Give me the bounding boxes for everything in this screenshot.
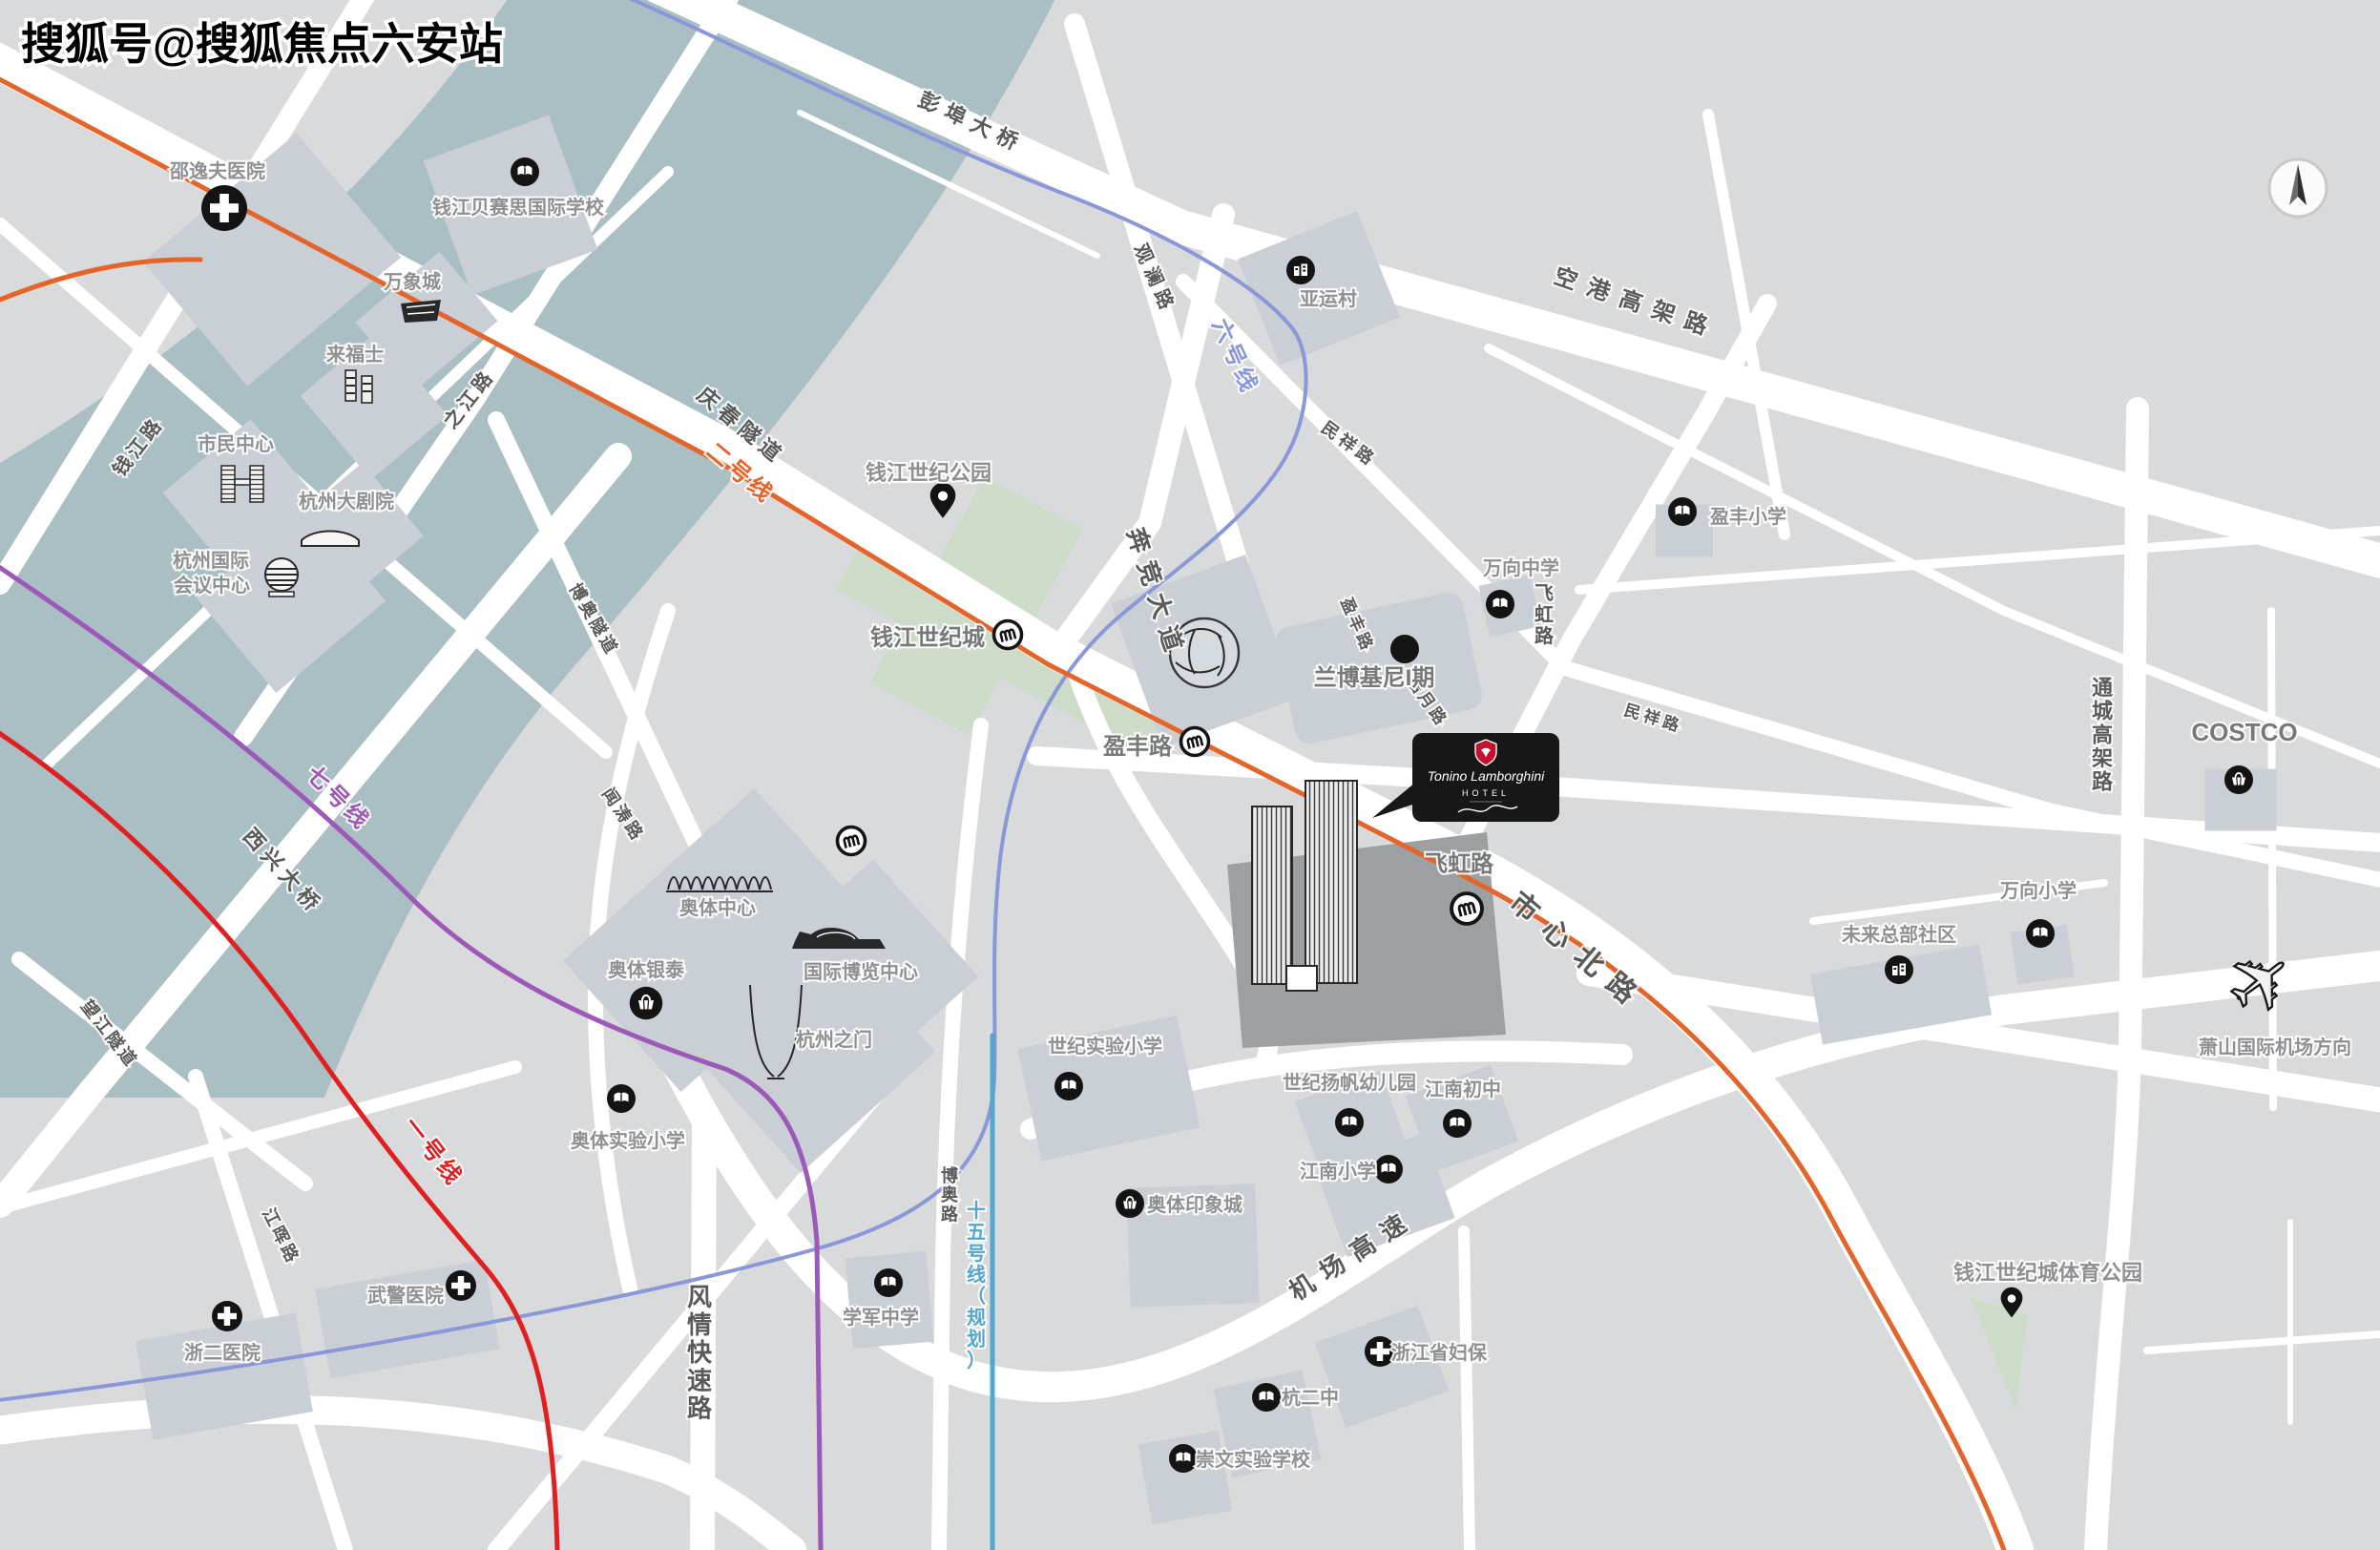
poi-label: 万向中学 (1482, 556, 1559, 579)
school-icon (874, 1268, 903, 1297)
site-dot-icon (1390, 635, 1419, 663)
poi-label: 盈丰小学 (1709, 505, 1786, 528)
shopping-icon (2224, 765, 2253, 794)
poi-label: COSTCO (2191, 718, 2297, 746)
poi-label: 万向小学 (1999, 879, 2077, 902)
school-icon (1054, 1072, 1083, 1100)
poi-label: 奥体印象城 (1147, 1193, 1242, 1216)
metro-station-icon (1181, 728, 1209, 756)
school-icon (1252, 1383, 1281, 1412)
poi-label: 钱江世纪城体育公园 (1953, 1261, 2142, 1285)
poi-label: 学军中学 (843, 1306, 919, 1329)
poi-label: 世纪扬帆幼儿园 (1283, 1071, 1416, 1094)
metro-station-icon (994, 621, 1022, 649)
school-icon (1335, 1108, 1364, 1137)
building-icon (1885, 955, 1913, 984)
poi-label: 江南小学 (1300, 1160, 1376, 1183)
poi-label: 奥体中心 (679, 896, 756, 919)
road-label: 博奥路 (941, 1165, 959, 1224)
poi-label: 飞虹路 (1425, 850, 1494, 877)
school-icon (1374, 1155, 1403, 1183)
mixc-sketch (401, 300, 441, 323)
road-label: 风情快速路 (687, 1283, 713, 1422)
map-canvas: ✈ 彭埠大桥 庆春隧道 二号线 钱江路 之江路 观澜路 民祥路 民祥路 六号线 … (0, 0, 2380, 1550)
school-icon (607, 1084, 636, 1113)
poi-label: 未来总部社区 (1842, 923, 1956, 946)
poi-label: 来福士 (325, 343, 384, 366)
road-label: 通城高架路 (2092, 676, 2114, 794)
school-icon (1668, 497, 1697, 526)
hospital-icon (201, 185, 247, 231)
poi-label: 杭州国际 (173, 549, 249, 572)
poi-label: 崇文实验学校 (1196, 1448, 1311, 1471)
poi-label: 万象城 (383, 270, 441, 293)
poi-label: 钱江世纪城 (870, 624, 985, 651)
poi-label: 兰博基尼I期 (1314, 664, 1435, 691)
poi-label: 奥体银泰 (608, 958, 685, 981)
hospital-icon (212, 1301, 242, 1331)
poi-label: 萧山国际机场方向 (2199, 1036, 2351, 1058)
poi-label: 钱江贝赛思国际学校 (432, 196, 605, 219)
block (846, 1251, 934, 1349)
poi-label: 浙二医院 (184, 1341, 261, 1364)
poi-label: 杭州大剧院 (299, 490, 394, 513)
hotel-type-text: HOTEL (1462, 788, 1510, 798)
poi-label: 江南初中 (1425, 1078, 1501, 1100)
road-label: 飞虹路 (1534, 583, 1555, 647)
watermark-text: 搜狐号@搜狐焦点六安站 (21, 19, 503, 69)
hotel-brand-text: Tonino Lamborghini (1428, 768, 1545, 784)
building-icon (1286, 256, 1315, 284)
poi-label: 奥体实验小学 (571, 1129, 685, 1152)
poi-label: 武警医院 (367, 1284, 444, 1307)
hospital-icon (446, 1270, 476, 1301)
map-svg: ✈ 彭埠大桥 庆春隧道 二号线 钱江路 之江路 观澜路 民祥路 民祥路 六号线 … (0, 0, 2380, 1550)
metro-station-icon (1451, 893, 1482, 924)
poi-label: 钱江世纪公园 (866, 461, 992, 485)
school-icon (1169, 1444, 1198, 1473)
poi-label: 世纪实验小学 (1048, 1035, 1162, 1058)
school-icon (511, 157, 539, 186)
school-icon (1443, 1109, 1472, 1138)
compass-icon (2269, 159, 2327, 217)
road (2271, 611, 2273, 1107)
road (1464, 1231, 1470, 1550)
hotel-towers-sketch (1252, 781, 1357, 991)
shopping-icon (1116, 1189, 1144, 1218)
poi-label: 杭州之门 (796, 1028, 872, 1051)
poi-label: 杭二中 (1282, 1386, 1339, 1409)
poi-label: 邵逸夫医院 (169, 159, 265, 182)
metro-line15-label: 十五号线（规划） (967, 1200, 986, 1372)
poi-label: 市民中心 (198, 432, 274, 455)
shopping-icon (630, 987, 663, 1020)
school-icon (1486, 590, 1514, 618)
poi-label: 亚运村 (1300, 288, 1357, 310)
poi-label: 会议中心 (174, 574, 250, 597)
metro-station-icon (838, 827, 866, 855)
school-icon (2026, 919, 2055, 948)
poi-label: 浙江省妇保 (1391, 1341, 1488, 1364)
poi-label: 盈丰路 (1102, 733, 1173, 760)
poi-label: 国际博览中心 (804, 960, 918, 983)
